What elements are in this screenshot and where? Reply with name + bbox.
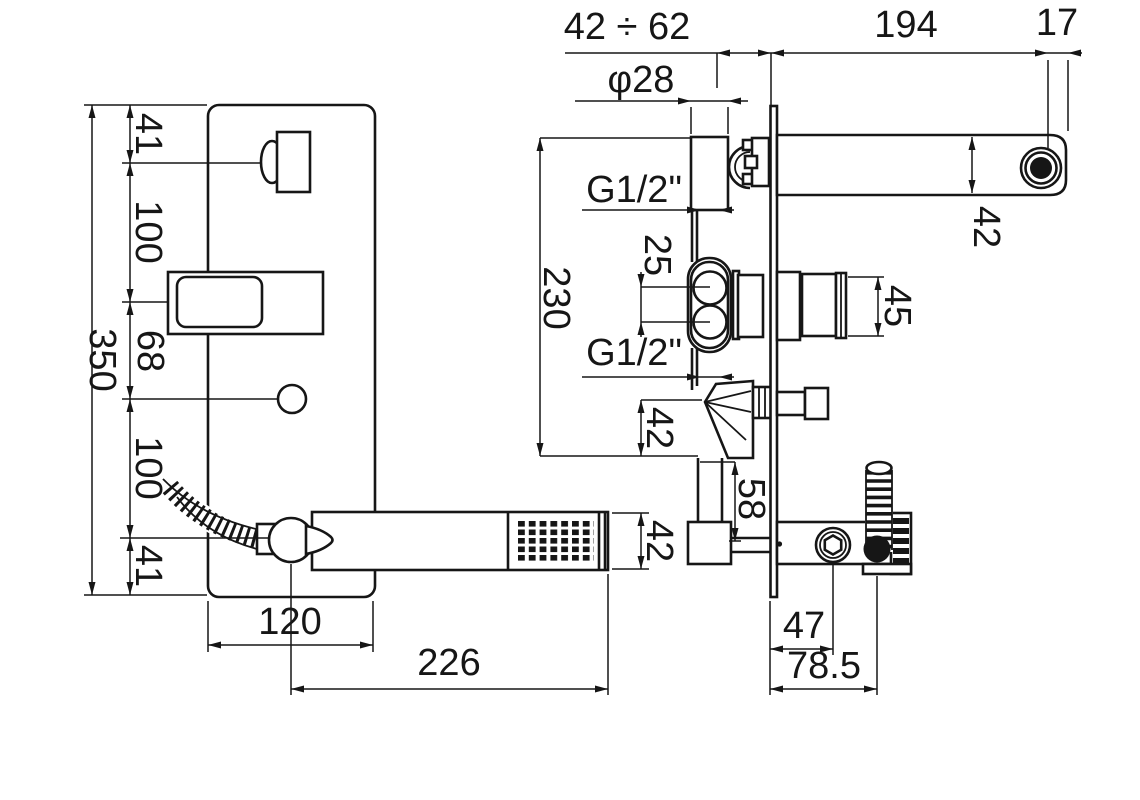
dim-port-gap: 25 xyxy=(636,234,678,276)
dim-seg1: 41 xyxy=(127,113,169,155)
dim-seg5: 41 xyxy=(127,545,169,587)
shower-holder-side xyxy=(777,462,911,574)
dim-spout-projection: 194 xyxy=(874,4,937,46)
dim-thread-top: G1/2" xyxy=(586,169,682,211)
valve-body-side xyxy=(688,258,763,352)
diverter-side xyxy=(705,381,772,458)
dim-body-height: 230 xyxy=(535,266,577,329)
drawing-canvas: 350 41 100 68 100 41 120 226 42 xyxy=(0,0,1140,800)
handle-plate-front xyxy=(168,272,323,334)
diverter-knob-side xyxy=(777,388,828,419)
spout-front xyxy=(261,132,310,192)
dim-wand-length: 226 xyxy=(417,642,480,684)
dim-thread-bottom: G1/2" xyxy=(586,332,682,374)
dim-seg4: 100 xyxy=(127,436,169,499)
dim-seg2: 100 xyxy=(127,200,169,263)
dim-spout-height: 42 xyxy=(965,206,1007,248)
dim-spout-diameter: φ28 xyxy=(608,59,675,101)
dim-hose-offset: 78.5 xyxy=(787,645,861,687)
spout-side xyxy=(777,135,1066,195)
aerator xyxy=(1030,157,1052,179)
hand-shower-front xyxy=(306,512,608,570)
dim-spout-end: 17 xyxy=(1036,2,1078,44)
spout-fitting-side xyxy=(691,137,769,210)
dim-seg3: 68 xyxy=(129,330,171,372)
dim-outlet-drop: 58 xyxy=(730,478,772,520)
dim-wand-height: 42 xyxy=(638,520,680,562)
side-dimensions: 42 ÷ 62 194 17 φ28 42 G1/2" G1/2" 230 xyxy=(535,2,1082,695)
handle-side xyxy=(777,272,846,340)
dim-handle-diameter: 45 xyxy=(876,285,918,327)
dim-plate-width: 120 xyxy=(258,601,321,643)
dim-depth-range: 42 ÷ 62 xyxy=(564,6,691,48)
front-view xyxy=(163,105,608,597)
dim-diverter-drop: 42 xyxy=(638,407,680,449)
dim-plate-height: 350 xyxy=(81,328,123,391)
dim-screw-offset: 47 xyxy=(783,605,825,647)
hose-connection-side xyxy=(864,462,893,563)
technical-drawing-sheet: 350 41 100 68 100 41 120 226 42 xyxy=(0,0,1140,800)
diverter-knob-front xyxy=(278,385,306,413)
cartridge-flange xyxy=(738,275,763,337)
spray-face-grid xyxy=(518,521,594,563)
